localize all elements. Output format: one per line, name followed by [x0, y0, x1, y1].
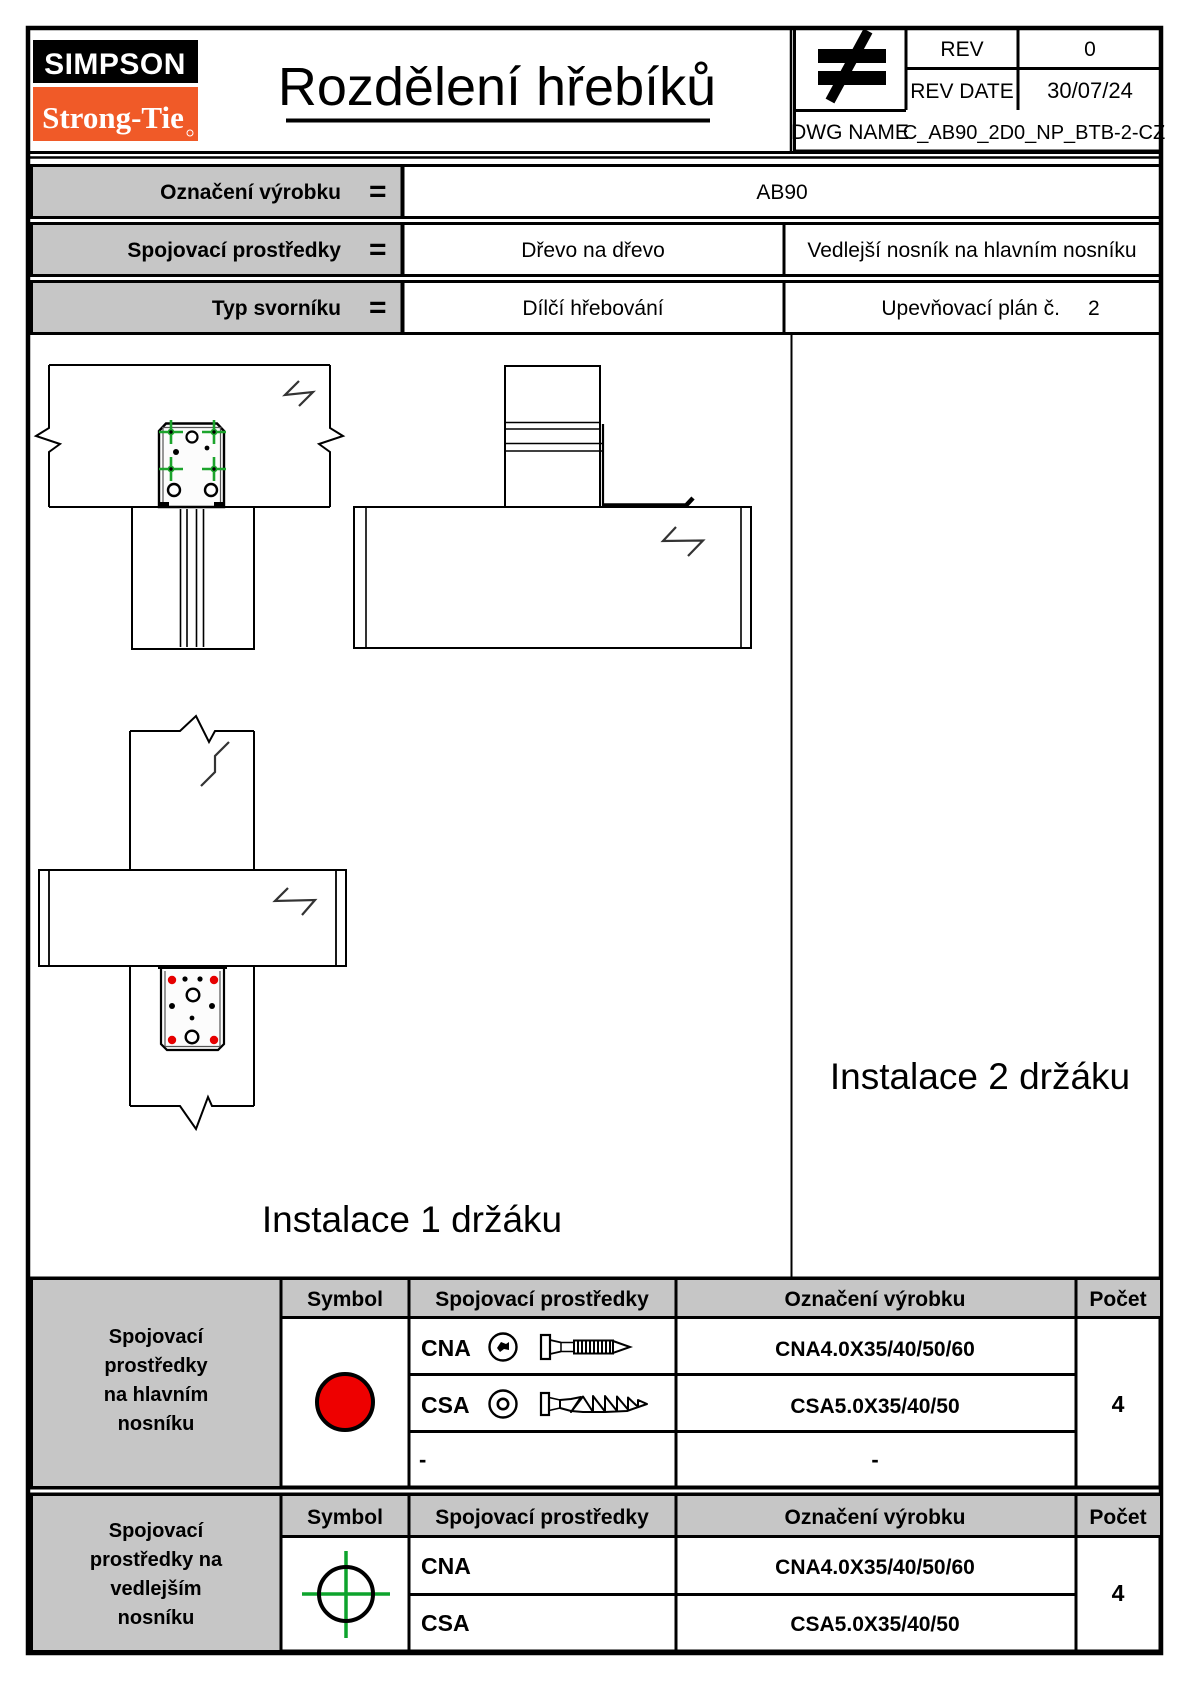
svg-text:CSA5.0X35/40/50: CSA5.0X35/40/50: [790, 1395, 959, 1418]
svg-text:Rozdělení hřebíků: Rozdělení hřebíků: [278, 57, 716, 117]
svg-text:REV DATE: REV DATE: [910, 80, 1013, 103]
svg-text:4: 4: [1112, 1580, 1125, 1606]
svg-text:Spojovací prostředky: Spojovací prostředky: [435, 1506, 649, 1529]
svg-text:Instalace 2 držáku: Instalace 2 držáku: [830, 1056, 1130, 1097]
svg-text:Symbol: Symbol: [307, 1288, 383, 1311]
svg-text:Označení výrobku: Označení výrobku: [785, 1288, 966, 1311]
svg-text:Strong-Tie: Strong-Tie: [42, 100, 184, 135]
svg-text:=: =: [369, 233, 387, 266]
svg-text:CSA: CSA: [421, 1392, 470, 1418]
svg-text:C_AB90_2D0_NP_BTB-2-CZ: C_AB90_2D0_NP_BTB-2-CZ: [903, 122, 1165, 144]
svg-text:Označení výrobku: Označení výrobku: [785, 1506, 966, 1529]
svg-text:CSA: CSA: [421, 1610, 470, 1636]
svg-text:4: 4: [1112, 1391, 1125, 1417]
svg-text:Dřevo na dřevo: Dřevo na dřevo: [521, 239, 665, 262]
svg-text:2: 2: [1088, 297, 1100, 320]
svg-text:CNA: CNA: [421, 1335, 471, 1361]
svg-text:=: =: [369, 175, 387, 208]
svg-text:prostředky na: prostředky na: [90, 1549, 223, 1571]
svg-text:30/07/24: 30/07/24: [1047, 78, 1133, 103]
svg-text:-: -: [419, 1447, 426, 1472]
svg-text:Dílčí hřebování: Dílčí hřebování: [522, 297, 663, 320]
svg-text:vedlejším: vedlejším: [110, 1578, 201, 1600]
svg-text:Vedlejší nosník na hlavním nos: Vedlejší nosník na hlavním nosníku: [807, 239, 1136, 262]
svg-text:Instalace 1 držáku: Instalace 1 držáku: [262, 1199, 562, 1240]
svg-text:REV: REV: [940, 38, 983, 61]
svg-text:Spojovací: Spojovací: [109, 1520, 205, 1542]
svg-text:na hlavním: na hlavním: [104, 1384, 208, 1406]
svg-text:prostředky: prostředky: [104, 1355, 208, 1377]
svg-text:CNA4.0X35/40/50/60: CNA4.0X35/40/50/60: [775, 1556, 975, 1579]
svg-text:0: 0: [1084, 38, 1096, 61]
svg-text:nosníku: nosníku: [118, 1413, 195, 1435]
svg-text:Symbol: Symbol: [307, 1506, 383, 1529]
svg-text:Počet: Počet: [1089, 1506, 1146, 1529]
svg-text:Označení výrobku: Označení výrobku: [160, 181, 341, 204]
svg-text:Spojovací prostředky: Spojovací prostředky: [127, 239, 341, 262]
svg-text:CSA5.0X35/40/50: CSA5.0X35/40/50: [790, 1613, 959, 1636]
svg-text:Počet: Počet: [1089, 1288, 1146, 1311]
svg-text:CNA: CNA: [421, 1553, 471, 1579]
svg-text:-: -: [871, 1447, 878, 1472]
svg-text:Spojovací prostředky: Spojovací prostředky: [435, 1288, 649, 1311]
svg-text:CNA4.0X35/40/50/60: CNA4.0X35/40/50/60: [775, 1338, 975, 1361]
svg-text:Spojovací: Spojovací: [109, 1326, 205, 1348]
svg-text:AB90: AB90: [756, 181, 807, 204]
svg-text:DWG NAME: DWG NAME: [791, 121, 909, 144]
svg-text:SIMPSON: SIMPSON: [44, 48, 186, 81]
svg-text:=: =: [369, 291, 387, 324]
svg-text:nosníku: nosníku: [118, 1607, 195, 1629]
svg-text:Upevňovací plán č.: Upevňovací plán č.: [881, 297, 1060, 320]
svg-text:Typ svorníku: Typ svorníku: [212, 297, 341, 320]
